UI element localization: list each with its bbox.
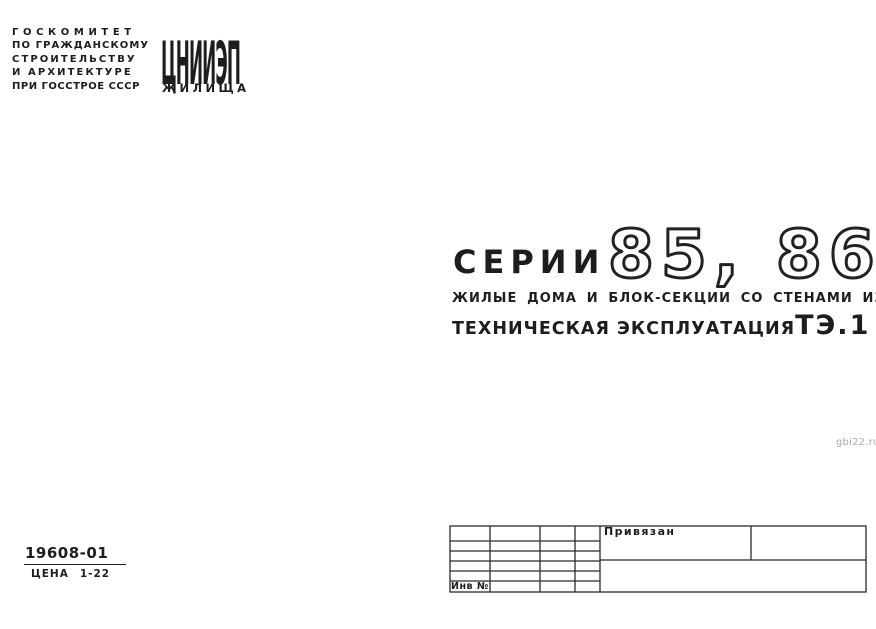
price-value: 1-22 — [80, 568, 110, 580]
org-line: ПРИ ГОССТРОЕ СССР — [12, 80, 149, 93]
stamp-inventory-label: Инв № — [451, 581, 489, 592]
org-line: ГОСКОМИТЕТ — [12, 26, 149, 39]
doc-type: ТЕХНИЧЕСКАЯ ЭКСПЛУАТАЦИЯ — [452, 319, 795, 339]
series-numbers-graphic: 85, 86 — [604, 213, 876, 293]
watermark: gbi22.ru — [836, 437, 876, 448]
catalog-number: 19608-01 — [24, 544, 126, 565]
org-block: ГОСКОМИТЕТ ПО ГРАЖДАНСКОМУ СТРОИТЕЛЬСТВУ… — [12, 26, 149, 93]
document-page: ГОСКОМИТЕТ ПО ГРАЖДАНСКОМУ СТРОИТЕЛЬСТВУ… — [0, 0, 876, 629]
logo-name: ЖИЛИЩА — [162, 81, 249, 95]
org-line: СТРОИТЕЛЬСТВУ — [12, 53, 149, 66]
price-row: ЦЕНА 1-22 — [31, 568, 126, 580]
doc-type-row: ТЕХНИЧЕСКАЯ ЭКСПЛУАТАЦИЯ ТЭ.1 — [452, 310, 862, 341]
series-label: СЕРИИ — [453, 243, 605, 281]
catalog-block: 19608-01 ЦЕНА 1-22 — [24, 543, 126, 580]
org-line: И АРХИТЕКТУРЕ — [12, 66, 149, 79]
doc-code: ТЭ.1 — [795, 310, 870, 341]
series-numbers: 85, 86 — [608, 216, 876, 293]
publisher-logo: ЦНИИЭП ЖИЛИЩА — [161, 30, 251, 96]
org-line: ПО ГРАЖДАНСКОМУ — [12, 39, 149, 52]
price-label: ЦЕНА — [31, 568, 69, 580]
document-subtitle: ЖИЛЫЕ ДОМА И БЛОК-СЕКЦИИ СО СТЕНАМИ ИЗ К… — [452, 291, 876, 306]
stamp-note: Привязан — [604, 525, 675, 538]
